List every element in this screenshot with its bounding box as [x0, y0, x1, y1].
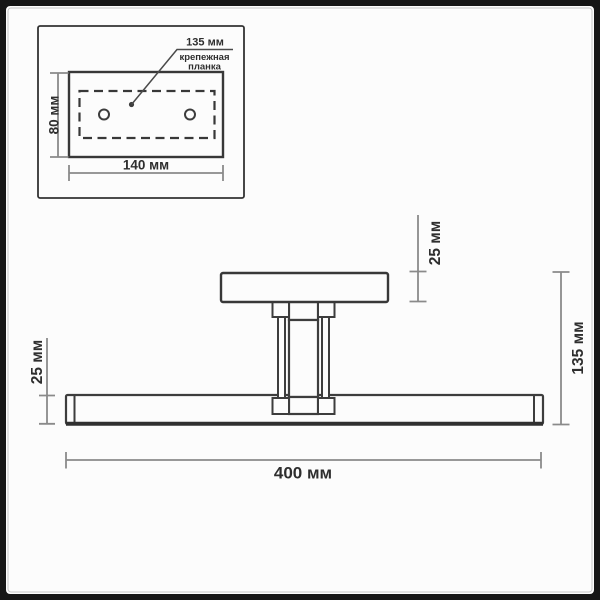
- hole-spacing-label: 135 мм: [186, 37, 224, 49]
- stem-column: [289, 320, 318, 397]
- stem-right-bottom-flange: [318, 398, 335, 414]
- stem: [273, 300, 335, 414]
- technical-drawing: 135 мм крепежная планка 80 мм 140 мм: [0, 0, 600, 600]
- canopy: [221, 273, 388, 302]
- plate-height-label: 80 мм: [47, 96, 62, 135]
- bar-thickness-label: 25 мм: [29, 340, 46, 384]
- mounting-plate: [69, 72, 223, 157]
- canopy-thickness-label: 25 мм: [427, 221, 444, 265]
- stem-left-bottom-flange: [273, 398, 290, 414]
- screw-hole-right: [185, 110, 195, 120]
- stem-right-top-flange: [318, 302, 335, 317]
- stem-right-arm: [322, 317, 329, 399]
- mounting-plate-inset: 135 мм крепежная планка 80 мм 140 мм: [38, 26, 244, 198]
- stem-left-arm: [278, 317, 285, 399]
- plate-name-label-line2: планка: [188, 62, 222, 73]
- plate-width-label: 140 мм: [123, 158, 169, 173]
- screw-hole-left: [99, 110, 109, 120]
- overall-height-label: 135 мм: [570, 321, 587, 374]
- stem-hub-bottom: [289, 397, 318, 414]
- stem-left-top-flange: [273, 302, 290, 317]
- overall-length-label: 400 мм: [274, 464, 332, 483]
